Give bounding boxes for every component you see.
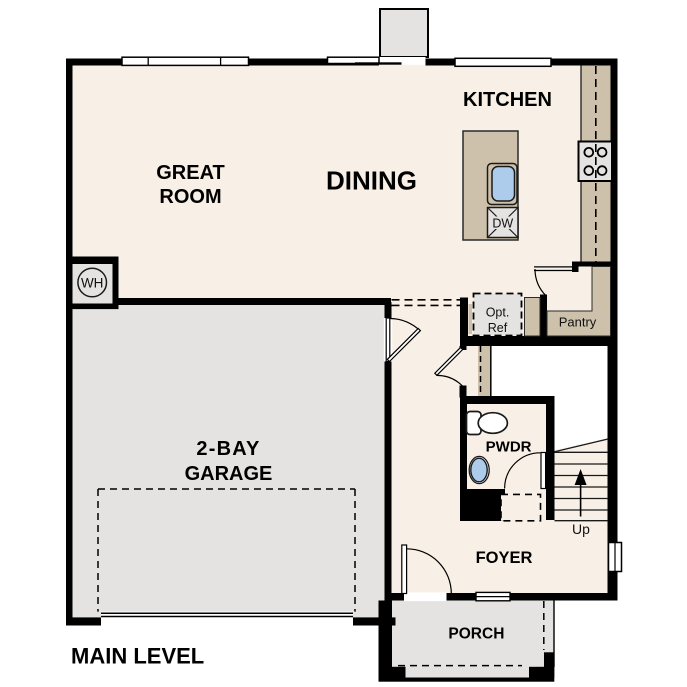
svg-text:GREAT: GREAT [156,162,225,184]
svg-text:MAIN LEVEL: MAIN LEVEL [71,644,204,669]
svg-text:WH: WH [81,276,104,291]
svg-text:ROOM: ROOM [159,186,221,208]
svg-text:Pantry: Pantry [559,315,597,330]
svg-text:DINING: DINING [326,166,417,196]
svg-text:KITCHEN: KITCHEN [463,89,552,111]
svg-text:PORCH: PORCH [448,625,504,642]
svg-text:DW: DW [492,216,513,230]
svg-text:Opt.: Opt. [486,306,510,320]
svg-text:GARAGE: GARAGE [185,463,273,485]
svg-text:Up: Up [572,521,590,537]
svg-text:Ref: Ref [488,321,508,335]
svg-text:FOYER: FOYER [476,549,533,567]
svg-text:PWDR: PWDR [486,439,532,456]
svg-text:2-BAY: 2-BAY [196,438,260,460]
